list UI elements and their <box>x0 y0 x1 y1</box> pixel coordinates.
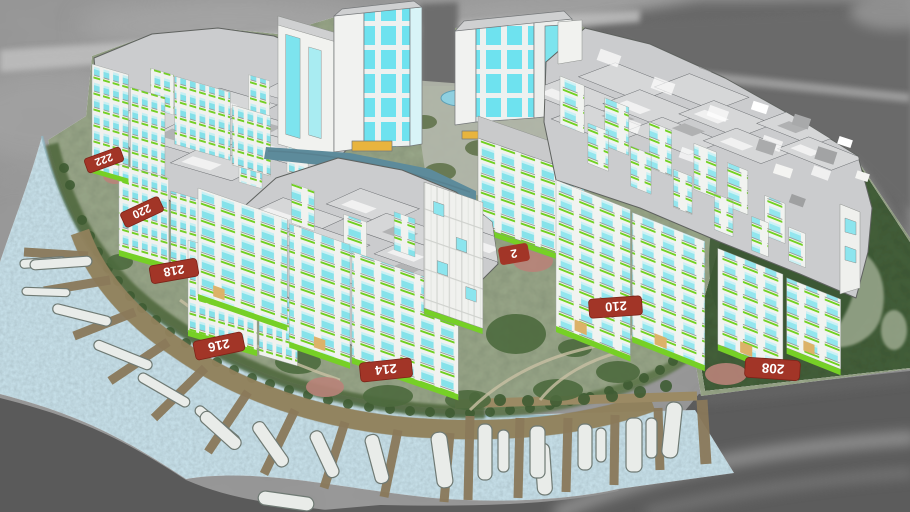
svg-text:208: 208 <box>761 360 785 377</box>
svg-text:214: 214 <box>374 361 398 378</box>
svg-text:210: 210 <box>605 298 628 314</box>
